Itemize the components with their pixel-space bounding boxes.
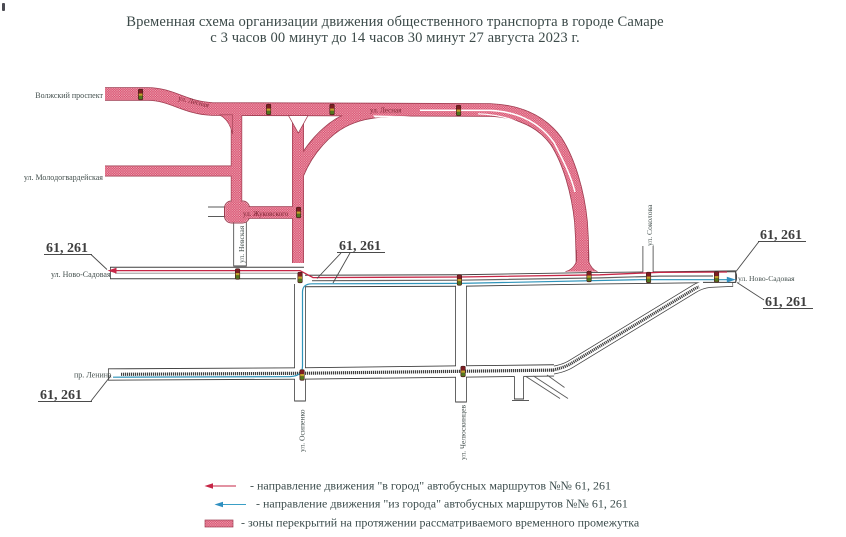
svg-text:61, 261: 61, 261	[40, 388, 82, 403]
svg-text:61, 261: 61, 261	[46, 241, 88, 256]
svg-text:ул. Невская: ул. Невская	[237, 225, 246, 263]
svg-text:ул. Лесная: ул. Лесная	[370, 107, 402, 115]
svg-text:ул. Молодогвардейская: ул. Молодогвардейская	[24, 173, 103, 182]
svg-text:61, 261: 61, 261	[760, 228, 802, 243]
svg-text:ул. Осипенко: ул. Осипенко	[298, 409, 307, 452]
svg-text:ул. Челюскинцев: ул. Челюскинцев	[459, 405, 468, 460]
svg-text:Временная схема организации дв: Временная схема организации движения общ…	[126, 14, 664, 30]
svg-text:Волжский проспект: Волжский проспект	[35, 91, 103, 100]
svg-text:- направление движения "в горо: - направление движения "в город" автобус…	[250, 479, 611, 493]
svg-text:61, 261: 61, 261	[765, 295, 807, 310]
svg-text:ул. Ново-Садовая: ул. Ново-Садовая	[51, 270, 111, 279]
svg-text:- зоны перекрытий на протяжени: - зоны перекрытий на протяжении рассматр…	[241, 516, 640, 530]
svg-text:ул. Ново-Садовая: ул. Ново-Садовая	[738, 274, 795, 283]
svg-text:пр. Ленина: пр. Ленина	[74, 371, 112, 380]
svg-text:ул. Жуковского: ул. Жуковского	[243, 210, 289, 218]
svg-text:61, 261: 61, 261	[339, 239, 381, 254]
svg-text:- направление движения "из гор: - направление движения "из города" автоб…	[256, 497, 628, 511]
svg-text:с 3 часов 00 минут до 14 часов: с 3 часов 00 минут до 14 часов 30 минут …	[210, 30, 579, 46]
svg-text:ул. Соколова: ул. Соколова	[645, 204, 654, 246]
